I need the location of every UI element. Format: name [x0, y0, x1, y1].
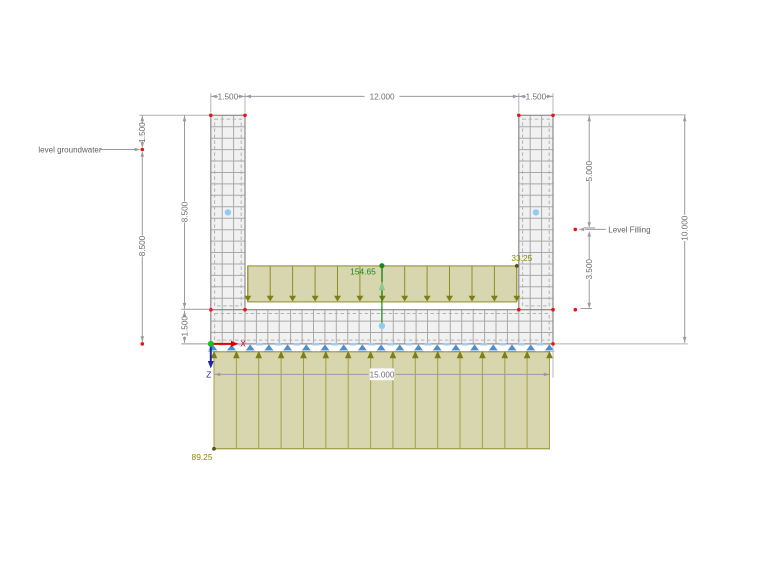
- svg-text:33.25: 33.25: [511, 253, 532, 263]
- svg-text:8.500: 8.500: [180, 201, 189, 222]
- svg-text:8.500: 8.500: [138, 235, 147, 256]
- svg-text:X: X: [240, 339, 246, 349]
- svg-text:Z: Z: [206, 369, 211, 379]
- svg-text:154.65: 154.65: [350, 267, 376, 277]
- svg-text:10.000: 10.000: [681, 215, 690, 240]
- svg-text:1.500: 1.500: [526, 92, 547, 101]
- svg-text:1.500: 1.500: [138, 122, 147, 143]
- svg-text:Level Filling: Level Filling: [608, 225, 650, 234]
- svg-text:15.000: 15.000: [370, 370, 395, 379]
- svg-text:89.25: 89.25: [192, 452, 213, 462]
- svg-text:12.000: 12.000: [370, 92, 395, 101]
- svg-text:1.500: 1.500: [218, 92, 239, 101]
- svg-text:1.500: 1.500: [180, 316, 189, 337]
- svg-text:level groundwater: level groundwater: [38, 146, 101, 155]
- svg-text:5.000: 5.000: [585, 161, 594, 182]
- svg-text:3.500: 3.500: [585, 259, 594, 280]
